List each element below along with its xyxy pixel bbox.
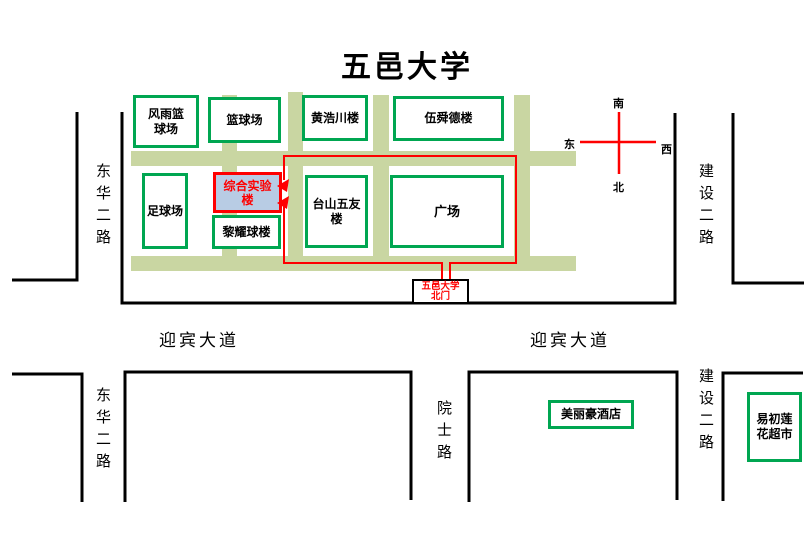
black-road-boundaries xyxy=(12,112,804,502)
landmark-label: 易初莲 花超市 xyxy=(756,412,792,442)
road-label-yingbin-avenue-left: 迎宾大道 xyxy=(144,326,254,351)
building-fengyu-basketball-court: 风雨篮 球场 xyxy=(133,95,199,148)
north-gate-box: 五邑大学 北门 xyxy=(412,279,469,304)
landmark-hotel: 美丽豪酒店 xyxy=(548,400,634,429)
road-label-donghua-2-upper: 东华二路 xyxy=(92,163,113,251)
road-horizontal-lower xyxy=(131,256,576,271)
building-huanghaochuan: 黄浩川楼 xyxy=(302,95,368,141)
compass-west-label: 西 xyxy=(661,141,672,157)
building-label: 篮球场 xyxy=(226,113,262,128)
north-gate-label: 五邑大学 北门 xyxy=(421,282,459,302)
map-title: 五邑大学 xyxy=(307,42,507,86)
compass-north-label: 北 xyxy=(613,179,624,195)
compass-icon xyxy=(580,112,656,174)
building-label: 台山五友 楼 xyxy=(312,197,360,227)
road-label-jianshe-2-upper: 建设二路 xyxy=(695,163,716,251)
building-label: 黎耀球楼 xyxy=(222,225,270,240)
landmark-label: 美丽豪酒店 xyxy=(561,407,621,422)
road-vertical-2 xyxy=(288,92,303,271)
building-label: 黄浩川楼 xyxy=(311,111,359,126)
campus-map: 五邑大学 风雨篮 球场 篮球场 黄浩川楼 伍舜德楼 足球场 综合实验 楼 黎耀球… xyxy=(0,0,808,545)
road-label-donghua-2-lower: 东华二路 xyxy=(92,387,113,475)
building-label: 广场 xyxy=(434,204,460,219)
road-vertical-3 xyxy=(373,95,389,271)
road-vertical-4 xyxy=(514,95,530,271)
road-label-yuanshi: 院士路 xyxy=(433,400,454,466)
building-liyaoqiu: 黎耀球楼 xyxy=(212,215,281,249)
building-comprehensive-lab-highlighted: 综合实验 楼 xyxy=(213,172,282,213)
block-southwest xyxy=(125,372,411,502)
block-south-central xyxy=(469,372,677,502)
building-plaza: 广场 xyxy=(390,175,504,248)
building-label: 伍舜德楼 xyxy=(424,111,472,126)
landmark-supermarket: 易初莲 花超市 xyxy=(747,392,802,462)
road-label-yingbin-avenue-right: 迎宾大道 xyxy=(515,326,625,351)
building-wushunde: 伍舜德楼 xyxy=(393,96,504,141)
jianshe-upper-outer-edge xyxy=(733,113,804,283)
building-football-field: 足球场 xyxy=(142,173,188,249)
building-basketball-court: 篮球场 xyxy=(208,97,281,143)
donghua-lower-outer-edge xyxy=(12,374,82,502)
building-label: 风雨篮 球场 xyxy=(148,107,184,137)
road-label-jianshe-2-lower: 建设二路 xyxy=(695,368,716,456)
compass-east-label: 东 xyxy=(564,136,575,152)
building-label: 足球场 xyxy=(147,204,183,219)
compass-south-label: 南 xyxy=(613,95,624,111)
road-horizontal-upper xyxy=(131,151,576,166)
donghua-upper-outer-edge xyxy=(12,112,77,280)
building-label: 综合实验 楼 xyxy=(223,179,271,207)
building-taishan-wuyou: 台山五友 楼 xyxy=(305,175,368,248)
